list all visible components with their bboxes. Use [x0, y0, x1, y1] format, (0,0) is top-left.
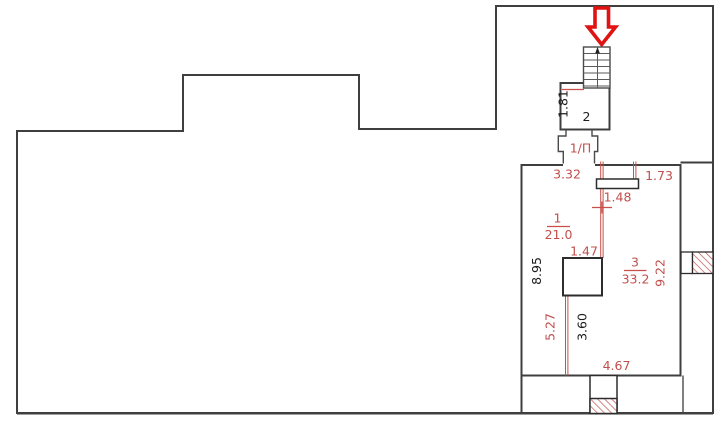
dim-inner-height: 3.60	[575, 313, 590, 341]
dim-bottom-width: 4.67	[603, 358, 631, 373]
bottom-shaft	[590, 376, 617, 414]
hatched-block-right	[693, 252, 714, 274]
passage-label: 1/П	[570, 141, 592, 156]
dim-duct-offset: 1.48	[604, 190, 632, 205]
vent-duct-box	[597, 179, 639, 189]
dim-stair-room-width: 1.81	[556, 90, 571, 118]
column-block	[563, 258, 602, 296]
dim-top-right: 1.73	[645, 168, 673, 183]
dim-right-height: 9.22	[653, 259, 668, 287]
right-wall-shaft	[681, 252, 713, 274]
room3-label: 3 33.2	[622, 255, 650, 287]
room1-label: 1 21.0	[545, 211, 573, 243]
staircase	[584, 47, 611, 88]
stair-direction-up-arrow-icon	[595, 47, 600, 54]
dim-column-width: 1.47	[570, 244, 598, 259]
room1-number: 1	[554, 211, 562, 226]
dim-top-left: 3.32	[553, 167, 581, 182]
dim-left-height: 8.95	[529, 257, 544, 285]
building-outline	[17, 6, 713, 413]
floor-plan-drawing: 1.81 2 1/П 3.32 1.73 1.48 1 21.0 1.47 3 …	[0, 0, 723, 435]
floor-plan-canvas: 1.81 2 1/П 3.32 1.73 1.48 1 21.0 1.47 3 …	[0, 0, 723, 435]
room2-number: 2	[583, 109, 591, 124]
room3-area: 33.2	[622, 272, 650, 287]
dim-partition-length: 5.27	[543, 313, 558, 341]
room1-area: 21.0	[545, 227, 573, 242]
hatched-block-bottom	[590, 399, 617, 414]
entrance-down-arrow-icon	[588, 8, 616, 45]
room3-number: 3	[631, 255, 639, 270]
